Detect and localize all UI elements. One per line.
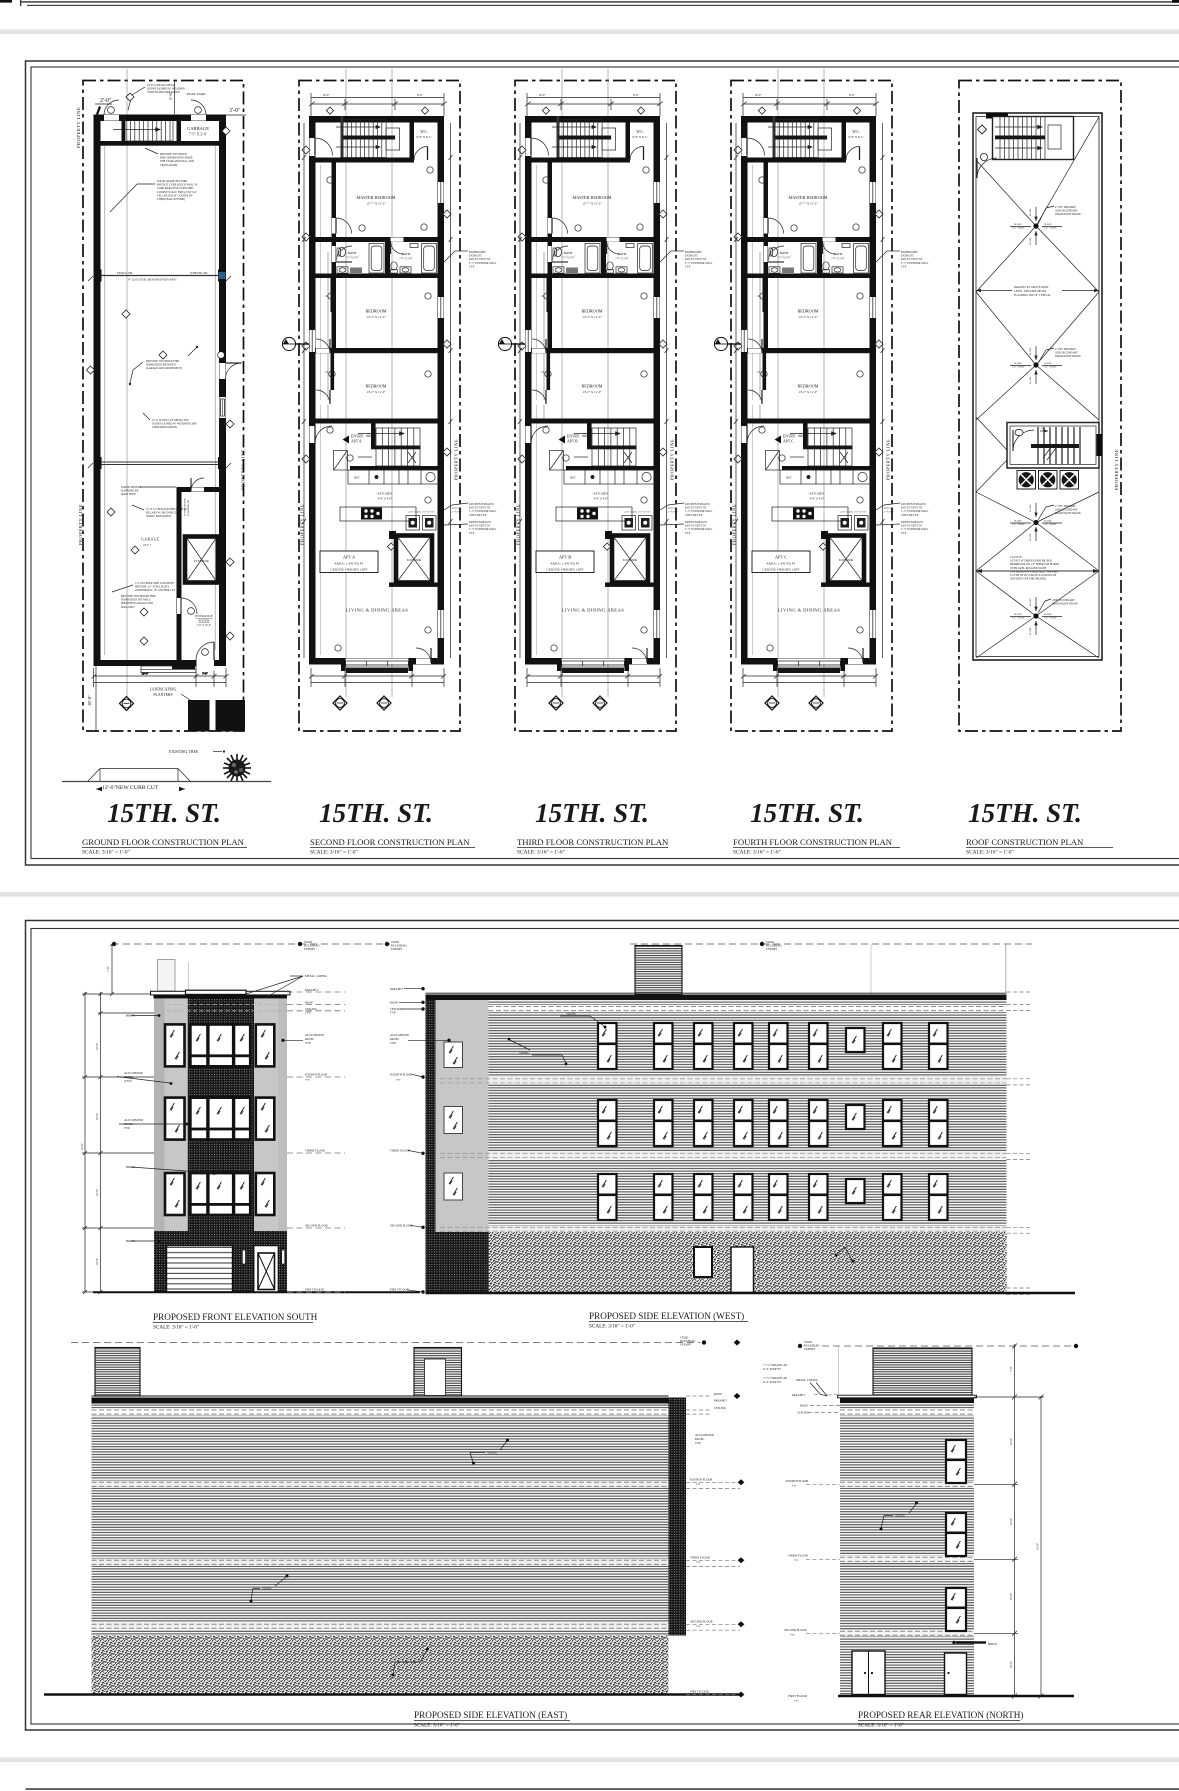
- svg-text:1/4″ PLY/BSER SIDE CONCRETE: 1/4″ PLY/BSER SIDE CONCRETE: [135, 582, 174, 585]
- svg-text:ENTRY: ENTRY: [783, 435, 796, 439]
- svg-text:FOURTH FLOOR: FOURTH FLOOR: [786, 1479, 808, 1483]
- svg-text:EXISTING TREE: EXISTING TREE: [169, 749, 199, 754]
- svg-text:SCALE: 3/16" = 1'-0": SCALE: 3/16" = 1'-0": [82, 850, 130, 856]
- svg-text:1/4" / FOOT: 1/4" / FOOT: [1012, 227, 1025, 230]
- svg-text:AND SECONDARY: AND SECONDARY: [1055, 210, 1078, 213]
- svg-text:ROOF CONSTRUCTION PLAN: ROOF CONSTRUCTION PLAN: [966, 837, 1084, 847]
- svg-text:10'-0": 10'-0": [95, 1042, 99, 1050]
- svg-text:HALLWAY): HALLWAY): [121, 606, 135, 609]
- svg-text:5', 5" EXTERIOR WALL: 5', 5" EXTERIOR WALL: [469, 528, 497, 531]
- svg-text:(TYP): (TYP): [124, 1079, 132, 1083]
- svg-text:APT B: APT B: [567, 440, 578, 444]
- svg-text:BULKHEAD: BULKHEAD: [680, 1340, 695, 1343]
- svg-text:1/4" / FOOT: 1/4" / FOOT: [1012, 366, 1025, 369]
- svg-text:LEVEL. PROVIDE METAL: LEVEL. PROVIDE METAL: [1014, 290, 1047, 293]
- svg-text:FOURTH FLOOR CONSTRUCTION PLA: FOURTH FLOOR CONSTRUCTION PLAN: [733, 837, 893, 847]
- svg-text:FIRST FLOOR: FIRST FLOOR: [788, 1694, 807, 1698]
- svg-text:GROUND FLOOR CONSTRUCTION PLAN: GROUND FLOOR CONSTRUCTION PLAN: [82, 837, 245, 847]
- svg-text:STAIR: STAIR: [804, 1341, 812, 1344]
- svg-text:SECOND FLOOR: SECOND FLOOR: [390, 1224, 413, 1228]
- svg-text:5', 5" EXTERIOR WALL: 5', 5" EXTERIOR WALL: [469, 510, 497, 513]
- svg-text:SCALE: 3/16" = 1'-0": SCALE: 3/16" = 1'-0": [517, 850, 565, 856]
- svg-text:PROVIDE TWO HOURS FIRE: PROVIDE TWO HOURS FIRE: [121, 595, 156, 598]
- svg-text:10'-0": 10'-0": [1009, 1517, 1013, 1525]
- svg-text:5R: 5R: [583, 433, 586, 436]
- svg-text:TYP: TYP: [696, 1625, 701, 1628]
- svg-text:PROVIDE 1/2" STEEL PLATE: PROVIDE 1/2" STEEL PLATE: [135, 586, 170, 589]
- svg-text:SLOPE: SLOPE: [1029, 627, 1032, 635]
- svg-text:EXEMPT: EXEMPT: [391, 948, 402, 951]
- svg-text:CROSS ROOM: CROSS ROOM: [160, 164, 178, 167]
- svg-text:SIDING: SIDING: [895, 1514, 906, 1518]
- svg-text:TYP: TYP: [696, 1483, 701, 1486]
- svg-text:ROOF: ROOF: [714, 1392, 722, 1396]
- svg-text:TYP.: TYP.: [469, 265, 475, 268]
- svg-text:2" X 9'-6": 2" X 9'-6": [452, 510, 462, 513]
- svg-text:ROOF: ROOF: [305, 1001, 313, 1005]
- svg-text:SLOPE: SLOPE: [1029, 504, 1032, 512]
- svg-text:10'-0": 10'-0": [95, 1188, 99, 1196]
- svg-text:PROPOSED SIDE ELEVATION (WEST: PROPOSED SIDE ELEVATION (WEST): [589, 1311, 744, 1321]
- svg-text:PROPERTY LINE: PROPERTY LINE: [241, 449, 246, 490]
- svg-text:KITCHEN EXHAUST: KITCHEN EXHAUST: [469, 503, 494, 506]
- svg-text:FLASHING TOP 18" TYPICAL: FLASHING TOP 18" TYPICAL: [1014, 294, 1051, 297]
- svg-text:PARAPET: PARAPET: [792, 1393, 805, 1397]
- svg-text:TYP: TYP: [305, 1078, 310, 1081]
- svg-text:BULKHEAD: BULKHEAD: [766, 945, 781, 948]
- svg-text:TYP: TYP: [696, 1561, 701, 1564]
- svg-text:WATER METERS: WATER METERS: [121, 486, 142, 489]
- svg-text:COURSE W/ACC FIRE (2) 34" D.C: COURSE W/ACC FIRE (2) 34" D.C: [157, 191, 197, 194]
- svg-text:8'-6": 8'-6": [417, 93, 424, 97]
- svg-text:ELEVATOR: ELEVATOR: [194, 559, 209, 563]
- svg-text:AND SECONDARY: AND SECONDARY: [1055, 352, 1078, 355]
- svg-text:15'-7" X 12'-2": 15'-7" X 12'-2": [366, 202, 386, 206]
- svg-text:4" PVC PRIMARY: 4" PVC PRIMARY: [1055, 206, 1076, 209]
- svg-text:THEIR( BAR OUTSIDE): THEIR( BAR OUTSIDE): [157, 198, 185, 201]
- svg-text:STAIR: STAIR: [304, 941, 312, 944]
- svg-text:ENTRANCE: ENTRANCE: [195, 614, 213, 618]
- svg-text:LAU. CLOS. 5'-2" X 3'-6": LAU. CLOS. 5'-2" X 3'-6": [408, 511, 435, 514]
- svg-text:TYP.: TYP.: [390, 1011, 396, 1015]
- svg-text:GARAGE: GARAGE: [141, 538, 160, 542]
- svg-text:PROPOSED REAR ELEVATION (NORTH: PROPOSED REAR ELEVATION (NORTH): [858, 1710, 1023, 1720]
- svg-text:3'-0": 3'-0": [229, 108, 241, 114]
- svg-text:PILLARS W/ 36) OVER CHIP: PILLARS W/ 36) OVER CHIP: [146, 512, 180, 515]
- svg-text:METAL COPING: METAL COPING: [796, 1378, 819, 1382]
- svg-text:PLANTERS: PLANTERS: [153, 693, 172, 697]
- svg-text:1/4" / FOOT: 1/4" / FOOT: [1044, 617, 1057, 620]
- svg-text:APT A: APT A: [351, 440, 362, 444]
- svg-text:TYP.: TYP.: [390, 1041, 396, 1045]
- svg-text:LANDSCAPING: LANDSCAPING: [150, 688, 177, 692]
- svg-text:10'-0": 10'-0": [95, 1257, 99, 1265]
- svg-text:41'-0": 41'-0": [80, 1142, 84, 1150]
- svg-text:FIRST FLOOR: FIRST FLOOR: [390, 1288, 409, 1292]
- svg-text:SLOPE: SLOPE: [1029, 598, 1032, 606]
- svg-text:+: 7'-2" PARAPET AB: +: 7'-2" PARAPET AB: [763, 1377, 787, 1380]
- svg-text:TYP: TYP: [794, 1559, 799, 1562]
- svg-text:4" PVC PRIMARY: 4" PVC PRIMARY: [1055, 348, 1076, 351]
- svg-text:13'-2" X 11'-0": 13'-2" X 11'-0": [366, 315, 386, 319]
- svg-text:TYP.: TYP.: [124, 1126, 130, 1130]
- svg-text:FOURTH FLOOR: FOURTH FLOOR: [690, 1478, 712, 1482]
- svg-text:STAIR: STAIR: [766, 941, 774, 944]
- svg-text:BATH: BATH: [402, 252, 411, 256]
- svg-text:41'-0" ROOF HT: 41'-0" ROOF HT: [763, 1381, 781, 1384]
- svg-text:PROPERTY LINE: PROPERTY LINE: [300, 504, 305, 545]
- svg-text:FIRST FLOOR: FIRST FLOOR: [690, 1690, 709, 1694]
- svg-text:BULKHEAD: BULKHEAD: [804, 1345, 819, 1348]
- svg-text:CEILING: CEILING: [714, 1406, 727, 1410]
- svg-text:APT C: APT C: [775, 555, 787, 560]
- svg-text:13'-2" X 11'-0": 13'-2" X 11'-0": [366, 390, 386, 394]
- svg-text:41'-0": 41'-0": [1036, 1542, 1040, 1550]
- svg-text:DRAIN ROOF DRAIN: DRAIN ROOF DRAIN: [1055, 355, 1081, 358]
- svg-text:FAN TO VENT TO: FAN TO VENT TO: [469, 525, 490, 528]
- svg-text:CORE BARS INSULT RECORD: CORE BARS INSULT RECORD: [157, 187, 193, 190]
- svg-text:STRIP (FIRE RATED): STRIP (FIRE RATED): [152, 426, 177, 429]
- svg-text:ROOF: ROOF: [800, 1404, 808, 1408]
- svg-text:W.METER CBL: W.METER CBL: [190, 272, 208, 275]
- svg-text:THIRD FLOOR: THIRD FLOOR: [390, 1149, 410, 1153]
- svg-text:METAL COPING: METAL COPING: [305, 974, 328, 978]
- svg-text:CELL BLOCK B" COURSE BY: CELL BLOCK B" COURSE BY: [157, 194, 193, 197]
- svg-text:THIRD FLOOR: THIRD FLOOR: [788, 1554, 808, 1558]
- svg-text:OVER GREL ROSATED SLOPE: OVER GREL ROSATED SLOPE: [1010, 567, 1047, 570]
- svg-text:BEDROOM: BEDROOM: [366, 384, 387, 389]
- svg-text:PARAPET: PARAPET: [714, 1399, 727, 1403]
- svg-text:DRAIN ROOF DRAIN: DRAIN ROOF DRAIN: [1052, 603, 1078, 606]
- svg-text:FAN TO VENT TO: FAN TO VENT TO: [469, 507, 490, 510]
- svg-text:PROVIDE TWO HOUR: PROVIDE TWO HOUR: [160, 153, 187, 156]
- svg-text:ALT-FLT (4"SHEER GERM B)L/BOS: ALT-FLT (4"SHEER GERM B)L/BOS: [1010, 560, 1053, 563]
- svg-text:10'-0": 10'-0": [1009, 1437, 1013, 1445]
- svg-text:FAN TO VENT TO: FAN TO VENT TO: [469, 258, 490, 261]
- svg-text:CEILING HEIGHT: 10FT: CEILING HEIGHT: 10FT: [762, 568, 800, 572]
- svg-text:9'-4" X 9'-6": 9'-4" X 9'-6": [378, 498, 392, 501]
- svg-text:KITCHEN: KITCHEN: [378, 492, 393, 496]
- svg-text:SLOPE: SLOPE: [1029, 347, 1032, 355]
- svg-text:PROVIDE TWO HOUR FIRE: PROVIDE TWO HOUR FIRE: [146, 360, 180, 363]
- svg-text:7'-8": 7'-8": [1009, 1365, 1013, 1372]
- svg-text:MASTER BEDROOM: MASTER BEDROOM: [357, 195, 396, 200]
- svg-text:PROPERTY LINE: PROPERTY LINE: [454, 439, 459, 480]
- svg-text:EXIST'G CBL: EXIST'G CBL: [117, 272, 133, 275]
- svg-text:UP TO CEILING METAL: UP TO CEILING METAL: [147, 84, 176, 87]
- svg-text:SEPARATION BETWEEN: SEPARATION BETWEEN: [146, 364, 176, 367]
- svg-text:7'-5" X 5'-0": 7'-5" X 5'-0": [345, 256, 358, 259]
- svg-text:10'-0": 10'-0": [1009, 1592, 1013, 1600]
- svg-text:ENTRY: ENTRY: [567, 435, 580, 439]
- svg-text:7'-0": 7'-0": [202, 673, 207, 676]
- svg-text:STAIR: STAIR: [680, 1337, 688, 1340]
- svg-text:DRAIN ROOF DRAIN: DRAIN ROOF DRAIN: [1055, 213, 1081, 216]
- svg-text:BEDROOM: BEDROOM: [366, 309, 387, 314]
- svg-text:PROPOSED FRONT ELEVATION SOUTH: PROPOSED FRONT ELEVATION SOUTH: [153, 1312, 318, 1322]
- svg-text:EXEMPT: EXEMPT: [766, 948, 777, 951]
- svg-text:& SPRINKLER: & SPRINKLER: [187, 499, 190, 516]
- svg-text:SIDING: SIDING: [519, 1051, 530, 1055]
- svg-text:DRYER EXHAUST: DRYER EXHAUST: [469, 521, 492, 524]
- svg-text:FOURTH FLOOR: FOURTH FLOOR: [305, 1073, 327, 1077]
- svg-text:CLASS 'B':: CLASS 'B':: [1010, 556, 1023, 559]
- svg-text:ENTRY: ENTRY: [351, 435, 364, 439]
- svg-text:CEILING: CEILING: [797, 1411, 810, 1415]
- svg-text:TYP: TYP: [790, 1634, 795, 1637]
- svg-text:BATH: BATH: [348, 251, 357, 255]
- svg-text:PARAPET 42"ABOVE ROOF: PARAPET 42"ABOVE ROOF: [1014, 286, 1049, 289]
- svg-text:TYP.: TYP.: [305, 1011, 311, 1015]
- svg-text:6'-8" X 6'-1": 6'-8" X 6'-1": [416, 135, 432, 139]
- svg-text:SCALE: 3/16" = 1'-0": SCALE: 3/16" = 1'-0": [858, 1723, 904, 1729]
- svg-text:UP: UP: [1041, 428, 1045, 431]
- svg-text:MAIN FEED: MAIN FEED: [121, 493, 136, 496]
- svg-text:TO THE OF IN CURCH CLASSED D.: TO THE OF IN CURCH CLASSED D.OF: [1010, 574, 1057, 577]
- svg-text:SCALE: 3/16" = 1'-0": SCALE: 3/16" = 1'-0": [589, 1324, 635, 1330]
- svg-text:SLOPE: SLOPE: [1029, 237, 1032, 245]
- svg-text:W' 12x53 STEEL BEAM BETWEEN A: W' 12x53 STEEL BEAM BETWEEN ABVT: [128, 279, 177, 282]
- svg-text:PARAPET: PARAPET: [390, 987, 403, 991]
- svg-text:REF: REF: [354, 477, 360, 480]
- svg-text:APT C: APT C: [783, 440, 794, 444]
- svg-text:FOURTH FLOOR: FOURTH FLOOR: [390, 1073, 412, 1077]
- svg-text:SIDING: SIDING: [262, 1587, 273, 1591]
- svg-text:(BETWEEN GARAGE AND: (BETWEEN GARAGE AND: [121, 602, 153, 605]
- svg-text:CL.: CL.: [325, 295, 330, 298]
- svg-text:SIDING: SIDING: [487, 1451, 498, 1455]
- svg-text:5R: 5R: [367, 433, 370, 436]
- svg-text:CEILING HEIGHT: 10FT: CEILING HEIGHT: 10FT: [546, 568, 584, 572]
- svg-text:SIDING: SIDING: [566, 1012, 577, 1016]
- svg-text:CEILING HEIGHT: 10FT: CEILING HEIGHT: 10FT: [330, 568, 368, 572]
- svg-text:SECOND FLOOR: SECOND FLOOR: [305, 1224, 328, 1228]
- svg-text:15TH. ST.: 15TH. ST.: [535, 798, 649, 828]
- svg-text:1/4" / FOOT: 1/4" / FOOT: [1012, 523, 1025, 526]
- svg-text:STAIR: STAIR: [391, 941, 399, 944]
- svg-text:PROPERTY LINE: PROPERTY LINE: [78, 504, 83, 545]
- svg-text:1/4" / FOOT: 1/4" / FOOT: [1012, 617, 1025, 620]
- svg-text:7'-8": 7'-8": [106, 965, 110, 972]
- svg-text:GARBAGE: GARBAGE: [187, 126, 209, 131]
- svg-text:7'-5" X 3'-0": 7'-5" X 3'-0": [189, 133, 208, 137]
- svg-text:15TH. ST.: 15TH. ST.: [968, 798, 1082, 828]
- svg-text:SLOPE: SLOPE: [1029, 376, 1032, 384]
- svg-text:10'-0": 10'-0": [95, 1112, 99, 1120]
- svg-text:(GARAGE AND APARTMENT): (GARAGE AND APARTMENT): [146, 367, 182, 370]
- svg-text:TYP: TYP: [794, 1700, 799, 1703]
- svg-text:10'-0": 10'-0": [1009, 1660, 1013, 1668]
- svg-text:TYP.: TYP.: [469, 532, 475, 535]
- svg-text:W.C.: W.C.: [420, 130, 427, 134]
- svg-text:TYP.: TYP.: [695, 1441, 701, 1445]
- svg-text:PROPERTY LINE: PROPERTY LINE: [76, 107, 81, 148]
- svg-text:BATHROOMS: BATHROOMS: [469, 251, 486, 254]
- svg-text:& SPRINKLER: & SPRINKLER: [121, 490, 139, 493]
- svg-text:SECOND FLOOR: SECOND FLOOR: [690, 1620, 713, 1624]
- svg-text:41'-0" ROOF HT: 41'-0" ROOF HT: [763, 1368, 781, 1371]
- svg-text:AND SECONDARY: AND SECONDARY: [1052, 599, 1075, 602]
- svg-text:1/4" / FOOT: 1/4" / FOOT: [1044, 227, 1057, 230]
- svg-text:THE STAIR AND WALL AND: THE STAIR AND WALL AND: [160, 160, 194, 163]
- svg-text:PROPERTY LINE: PROPERTY LINE: [1114, 449, 1119, 490]
- svg-text:SIZE (REVCWE FIRE BEAMS): SIZE (REVCWE FIRE BEAMS): [1010, 578, 1046, 581]
- svg-text:PATCH IT CURE BLOCK WALL W/: PATCH IT CURE BLOCK WALL W/: [157, 184, 198, 187]
- svg-text:AND SECONDARY: AND SECONDARY: [1055, 509, 1078, 512]
- svg-text:MEMBRANE ON 1.8" FIBER TOP BOA: MEMBRANE ON 1.8" FIBER TOP BOARD: [1010, 563, 1059, 566]
- svg-text:SCALE: 3/16" = 1'-0": SCALE: 3/16" = 1'-0": [733, 850, 781, 856]
- svg-text:EXEMPT: EXEMPT: [680, 1344, 691, 1347]
- svg-text:FIRE SEPARATION UNDER: FIRE SEPARATION UNDER: [160, 157, 193, 160]
- svg-text:APT B: APT B: [559, 555, 571, 560]
- svg-text:4" PVC PRIMARY: 4" PVC PRIMARY: [1055, 505, 1076, 508]
- svg-text:SOLID GRADE BEL/FIRE: SOLID GRADE BEL/FIRE: [157, 180, 188, 183]
- svg-text:7'-5" X 5'-6": 7'-5" X 5'-6": [399, 257, 412, 260]
- svg-text:STRIP SEAMS FIRE RATED: STRIP SEAMS FIRE RATED: [147, 91, 180, 94]
- svg-text:12" X 12" BUILD-IN METAL SD W/: 12" X 12" BUILD-IN METAL SD W/: [146, 508, 187, 511]
- svg-text:FOYER: FOYER: [199, 619, 211, 623]
- svg-text:PROPOSED SIDE ELEVATION (EAST): PROPOSED SIDE ELEVATION (EAST): [414, 1710, 567, 1720]
- svg-text:15TH. ST.: 15TH. ST.: [750, 798, 864, 828]
- svg-text:DARIO, FIRE RATED: DARIO, FIRE RATED: [146, 515, 171, 518]
- svg-text:SCALE: 3/16" = 1'-0": SCALE: 3/16" = 1'-0": [153, 1325, 199, 1331]
- svg-text:12'-0"NEW CURB CUT: 12'-0"NEW CURB CUT: [102, 785, 159, 791]
- svg-text:18'-0" +: 18'-0" +: [143, 544, 152, 547]
- svg-text:PARAPET: PARAPET: [305, 988, 318, 992]
- svg-text:DRAIN ROOF DRAIN: DRAIN ROOF DRAIN: [1055, 512, 1081, 515]
- svg-text:SEPARATION INT/WALL: SEPARATION INT/WALL: [121, 599, 151, 602]
- svg-text:BULKHEAD: BULKHEAD: [304, 945, 319, 948]
- svg-text:EXEMPT: EXEMPT: [304, 948, 315, 951]
- svg-text:10' X 10' ROLL-UP METAL SDT: 10' X 10' ROLL-UP METAL SDT: [152, 419, 189, 422]
- svg-text:5', 5" EXTERIOR WALL: 5', 5" EXTERIOR WALL: [469, 262, 497, 265]
- svg-text:5R: 5R: [799, 433, 802, 436]
- svg-text:10'-0": 10'-0": [322, 93, 330, 97]
- svg-text:DOOR FLASHED W/ WEATHER: DOOR FLASHED W/ WEATHER: [147, 88, 185, 91]
- svg-text:7'-0" X 10'-0": 7'-0" X 10'-0": [197, 624, 211, 627]
- svg-text:ROOF: ROOF: [390, 1001, 398, 1005]
- svg-text:SLOPE: SLOPE: [1029, 208, 1032, 216]
- svg-text:THE ALSED ON UNDECALLY TAB FIR: THE ALSED ON UNDECALLY TAB FIRE: [1010, 570, 1058, 573]
- svg-text:THIRD FLOOR: THIRD FLOOR: [690, 1556, 710, 1560]
- svg-text:SECOND FLOOR: SECOND FLOOR: [784, 1628, 807, 1632]
- svg-text:TYP: TYP: [396, 1078, 401, 1081]
- svg-text:CHE/TNR TYP.: CHE/TNR TYP.: [469, 514, 487, 517]
- svg-text:15TH. ST.: 15TH. ST.: [107, 798, 221, 828]
- svg-text:BULKHEAD: BULKHEAD: [391, 945, 406, 948]
- svg-text:EXHAUST: EXHAUST: [469, 255, 482, 258]
- svg-text:10'-0": 10'-0": [87, 695, 92, 706]
- svg-text:SCALE: 3/16" = 1'-0": SCALE: 3/16" = 1'-0": [966, 850, 1014, 856]
- svg-text:1/4" / FOOT: 1/4" / FOOT: [1044, 366, 1057, 369]
- svg-text:SECOND FLOOR CONSTRUCTION PLAN: SECOND FLOOR CONSTRUCTION PLAN: [310, 837, 470, 847]
- svg-text:19'-6": 19'-6": [142, 673, 149, 676]
- svg-text:REAR YARD: REAR YARD: [187, 92, 207, 96]
- svg-text:+: 7'-2" PARAPET AB: +: 7'-2" PARAPET AB: [763, 1364, 787, 1367]
- svg-text:ON BEDROCK - B" ANCHOR CUT: ON BEDROCK - B" ANCHOR CUT: [135, 589, 176, 592]
- svg-text:1/4" / FOOT: 1/4" / FOOT: [1044, 523, 1057, 526]
- svg-text:EXEMPT: EXEMPT: [804, 1348, 815, 1351]
- svg-text:SCALE: 3/16" = 1'-0": SCALE: 3/16" = 1'-0": [310, 850, 358, 856]
- svg-text:ELEVATOR: ELEVATOR: [407, 558, 422, 562]
- svg-text:LIVING & DINING AREAS: LIVING & DINING AREAS: [346, 608, 408, 613]
- svg-text:BRICK: BRICK: [988, 1642, 998, 1646]
- svg-text:FIRST FLOOR: FIRST FLOOR: [305, 1288, 324, 1292]
- svg-text:SCALE: 3/16" = 1'-0": SCALE: 3/16" = 1'-0": [414, 1723, 460, 1729]
- svg-text:APT A: APT A: [343, 555, 356, 560]
- svg-text:SLOPE: SLOPE: [1029, 533, 1032, 541]
- svg-text:TYP.: TYP.: [305, 1041, 311, 1045]
- svg-text:THIRD FLOOR CONSTRUCTION PLAN: THIRD FLOOR CONSTRUCTION PLAN: [517, 837, 669, 847]
- svg-text:TYP: TYP: [792, 1485, 797, 1488]
- svg-text:15TH. ST.: 15TH. ST.: [319, 798, 433, 828]
- svg-text:DOOR FLASHED W/ WEATHER CHIP: DOOR FLASHED W/ WEATHER CHIP: [152, 423, 197, 426]
- svg-text:THIRD FLOOR: THIRD FLOOR: [305, 1149, 325, 1153]
